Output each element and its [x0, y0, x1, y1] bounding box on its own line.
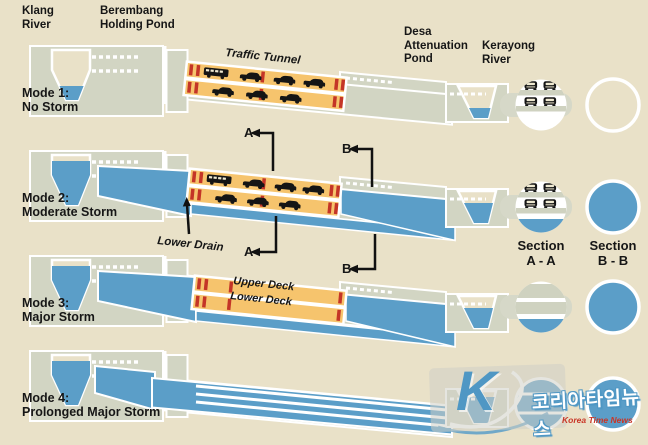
- mode-2-cross-section: [30, 151, 639, 240]
- deck-slab: [516, 192, 566, 198]
- mode-1-label: Mode 1: No Storm: [22, 86, 78, 115]
- section-aa-content: [513, 284, 569, 335]
- mode-1-cross-section: [30, 46, 639, 131]
- berembang-holding-pond-label: Berembang Holding Pond: [100, 5, 175, 32]
- mode-2-label: Mode 2: Moderate Storm: [22, 191, 117, 220]
- desa-attenuation-pond-label: Desa Attenuation Pond: [404, 26, 468, 67]
- watermark-english-text: Korea Time News: [562, 415, 633, 425]
- diagram-page: Klang River Berembang Holding Pond Desa …: [0, 0, 648, 445]
- kerayong-river-label: Kerayong River: [482, 40, 535, 67]
- empty-lower-deck: [514, 302, 568, 314]
- klang-river-label: Klang River: [22, 5, 54, 32]
- mode-4-label: Mode 4: Prolonged Major Storm: [22, 391, 160, 420]
- section-bb-label: Section B - B: [585, 239, 641, 269]
- empty-upper-deck: [514, 284, 568, 298]
- cut-line-b-lower: [357, 234, 375, 269]
- cut-marker-b-upper: B: [342, 141, 351, 156]
- drain-water: [513, 219, 569, 235]
- deck-slab: [516, 208, 566, 214]
- deck-slab: [516, 90, 566, 96]
- cut-marker-b-lower: B: [342, 261, 351, 276]
- cut-marker-a-lower: A: [244, 244, 253, 259]
- section-bb-circle-mode3: [587, 281, 639, 333]
- deck-slab: [516, 106, 566, 112]
- mode-3-label: Mode 3: Major Storm: [22, 296, 95, 325]
- section-aa-label: Section A - A: [513, 239, 569, 269]
- watermark-logo: K: [456, 358, 496, 423]
- watermark-korean-text: 코리아타임뉴스: [531, 382, 648, 442]
- mode-3-cross-section: [30, 256, 639, 347]
- section-bb-circle-mode1: [587, 79, 639, 131]
- drain-water: [513, 319, 569, 335]
- cut-marker-a-upper: A: [244, 125, 253, 140]
- cut-line-a-upper: [259, 133, 273, 171]
- section-bb-circle-mode2: [587, 181, 639, 233]
- section-aa-circle-mode1: [516, 80, 567, 131]
